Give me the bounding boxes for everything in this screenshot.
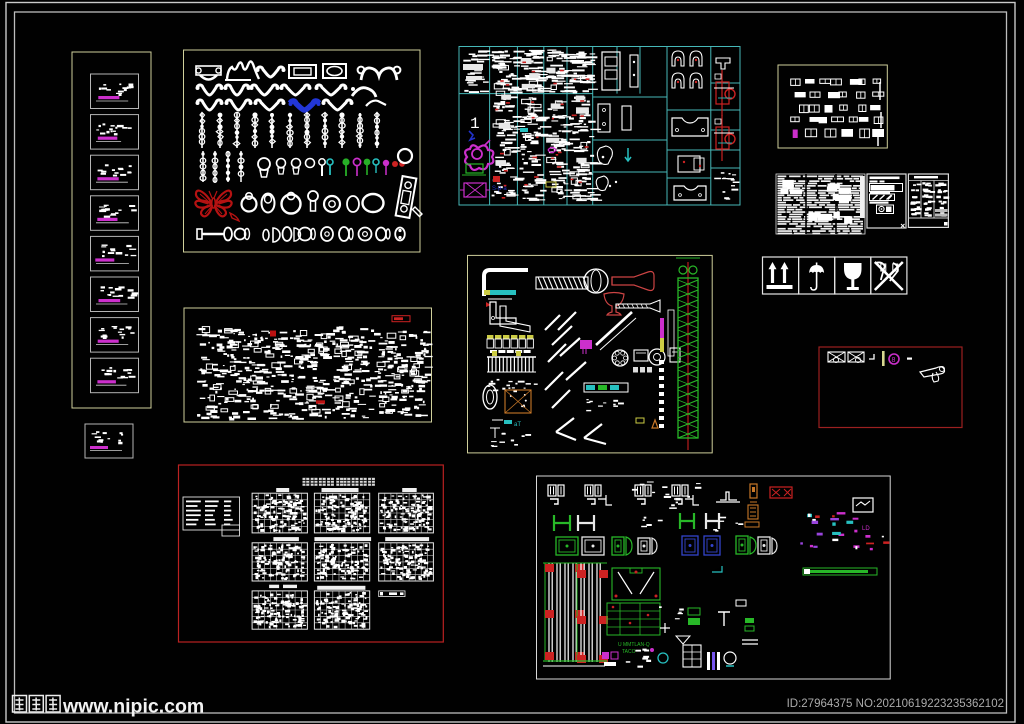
svg-text:S-p-a: S-p-a: [492, 186, 507, 192]
svg-text:ID:27964375 NO:202106192232353: ID:27964375 NO:20210619223235362102: [787, 698, 1004, 710]
svg-text:aT: aT: [514, 422, 521, 428]
svg-text:1: 1: [470, 115, 480, 133]
svg-text:LD: LD: [862, 526, 870, 532]
svg-text:8: 8: [892, 357, 896, 364]
svg-text:U MMTLAN-Q: U MMTLAN-Q: [618, 642, 650, 648]
svg-text:TACO: TACO: [622, 649, 636, 655]
svg-text:www.nipic.com: www.nipic.com: [62, 696, 204, 718]
